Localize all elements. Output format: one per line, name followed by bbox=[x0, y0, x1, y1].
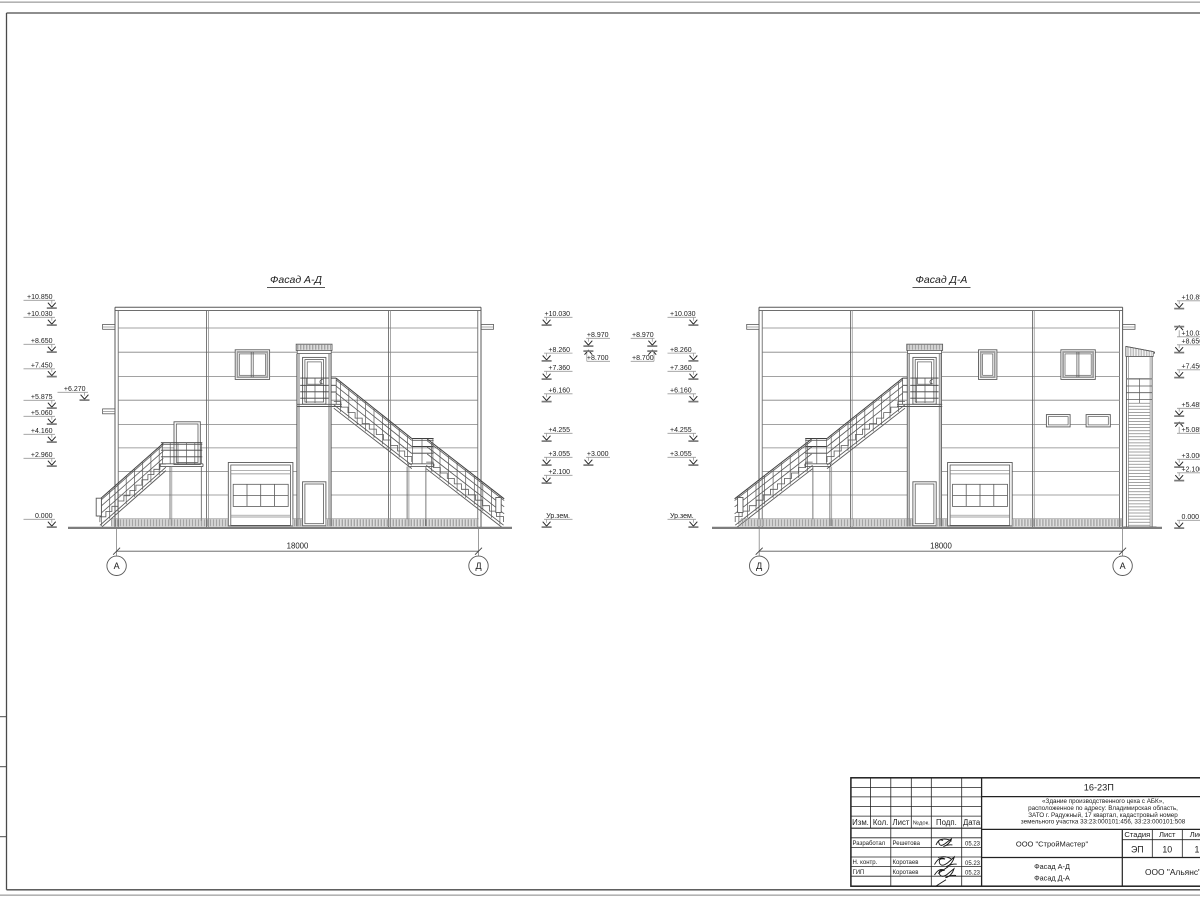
svg-text:Решетова: Решетова bbox=[893, 841, 921, 847]
svg-text:Лист: Лист bbox=[893, 818, 910, 827]
svg-text:Стадия: Стадия bbox=[1124, 830, 1150, 839]
svg-text:А: А bbox=[1120, 561, 1126, 571]
svg-text:Фасад А-Д: Фасад А-Д bbox=[1034, 862, 1070, 871]
svg-text:Изм.: Изм. bbox=[852, 818, 869, 827]
svg-text:10: 10 bbox=[1162, 844, 1172, 854]
svg-text:Коротаев: Коротаев bbox=[893, 860, 919, 866]
svg-text:16-23П: 16-23П bbox=[1084, 782, 1114, 792]
svg-text:Д: Д bbox=[475, 561, 481, 571]
svg-text:земельного участка 33:23:00010: земельного участка 33:23:000101:456, 33:… bbox=[1021, 819, 1186, 826]
svg-text:Фасад Д-А: Фасад Д-А bbox=[916, 274, 968, 286]
svg-text:Д: Д bbox=[756, 561, 762, 571]
svg-text:Н. контр.: Н. контр. bbox=[853, 860, 878, 866]
svg-text:Фасад А-Д: Фасад А-Д bbox=[270, 274, 322, 286]
svg-text:ГИП: ГИП bbox=[853, 870, 865, 876]
svg-text:1: 1 bbox=[1195, 844, 1200, 854]
svg-text:ООО "СтройМастер": ООО "СтройМастер" bbox=[1016, 840, 1089, 849]
svg-text:05.23: 05.23 bbox=[965, 870, 981, 876]
svg-text:Коротаев: Коротаев bbox=[893, 870, 919, 876]
svg-text:ООО "Альянс": ООО "Альянс" bbox=[1145, 867, 1200, 877]
svg-text:Разработал: Разработал bbox=[853, 841, 886, 847]
svg-text:ЭП: ЭП bbox=[1131, 844, 1144, 854]
svg-text:А: А bbox=[114, 561, 120, 571]
svg-text:№док.: №док. bbox=[913, 821, 930, 827]
svg-text:18000: 18000 bbox=[287, 541, 309, 550]
svg-text:Фасад Д-А: Фасад Д-А bbox=[1034, 874, 1070, 883]
svg-text:Подп.: Подп. bbox=[936, 818, 957, 827]
svg-text:Лис: Лис bbox=[1190, 830, 1200, 839]
svg-text:05.23: 05.23 bbox=[965, 861, 981, 867]
svg-text:05.23: 05.23 bbox=[965, 842, 981, 848]
svg-text:Дата: Дата bbox=[963, 818, 981, 827]
svg-text:расположенное по адресу: Влади: расположенное по адресу: Владимирская об… bbox=[1028, 804, 1178, 812]
svg-text:18000: 18000 bbox=[930, 541, 952, 550]
svg-text:Кол.: Кол. bbox=[873, 818, 888, 827]
svg-text:ЗАТО г. Радужный, 17 квартал,: ЗАТО г. Радужный, 17 квартал, кадастровы… bbox=[1028, 811, 1178, 819]
svg-text:Лист: Лист bbox=[1159, 830, 1176, 839]
